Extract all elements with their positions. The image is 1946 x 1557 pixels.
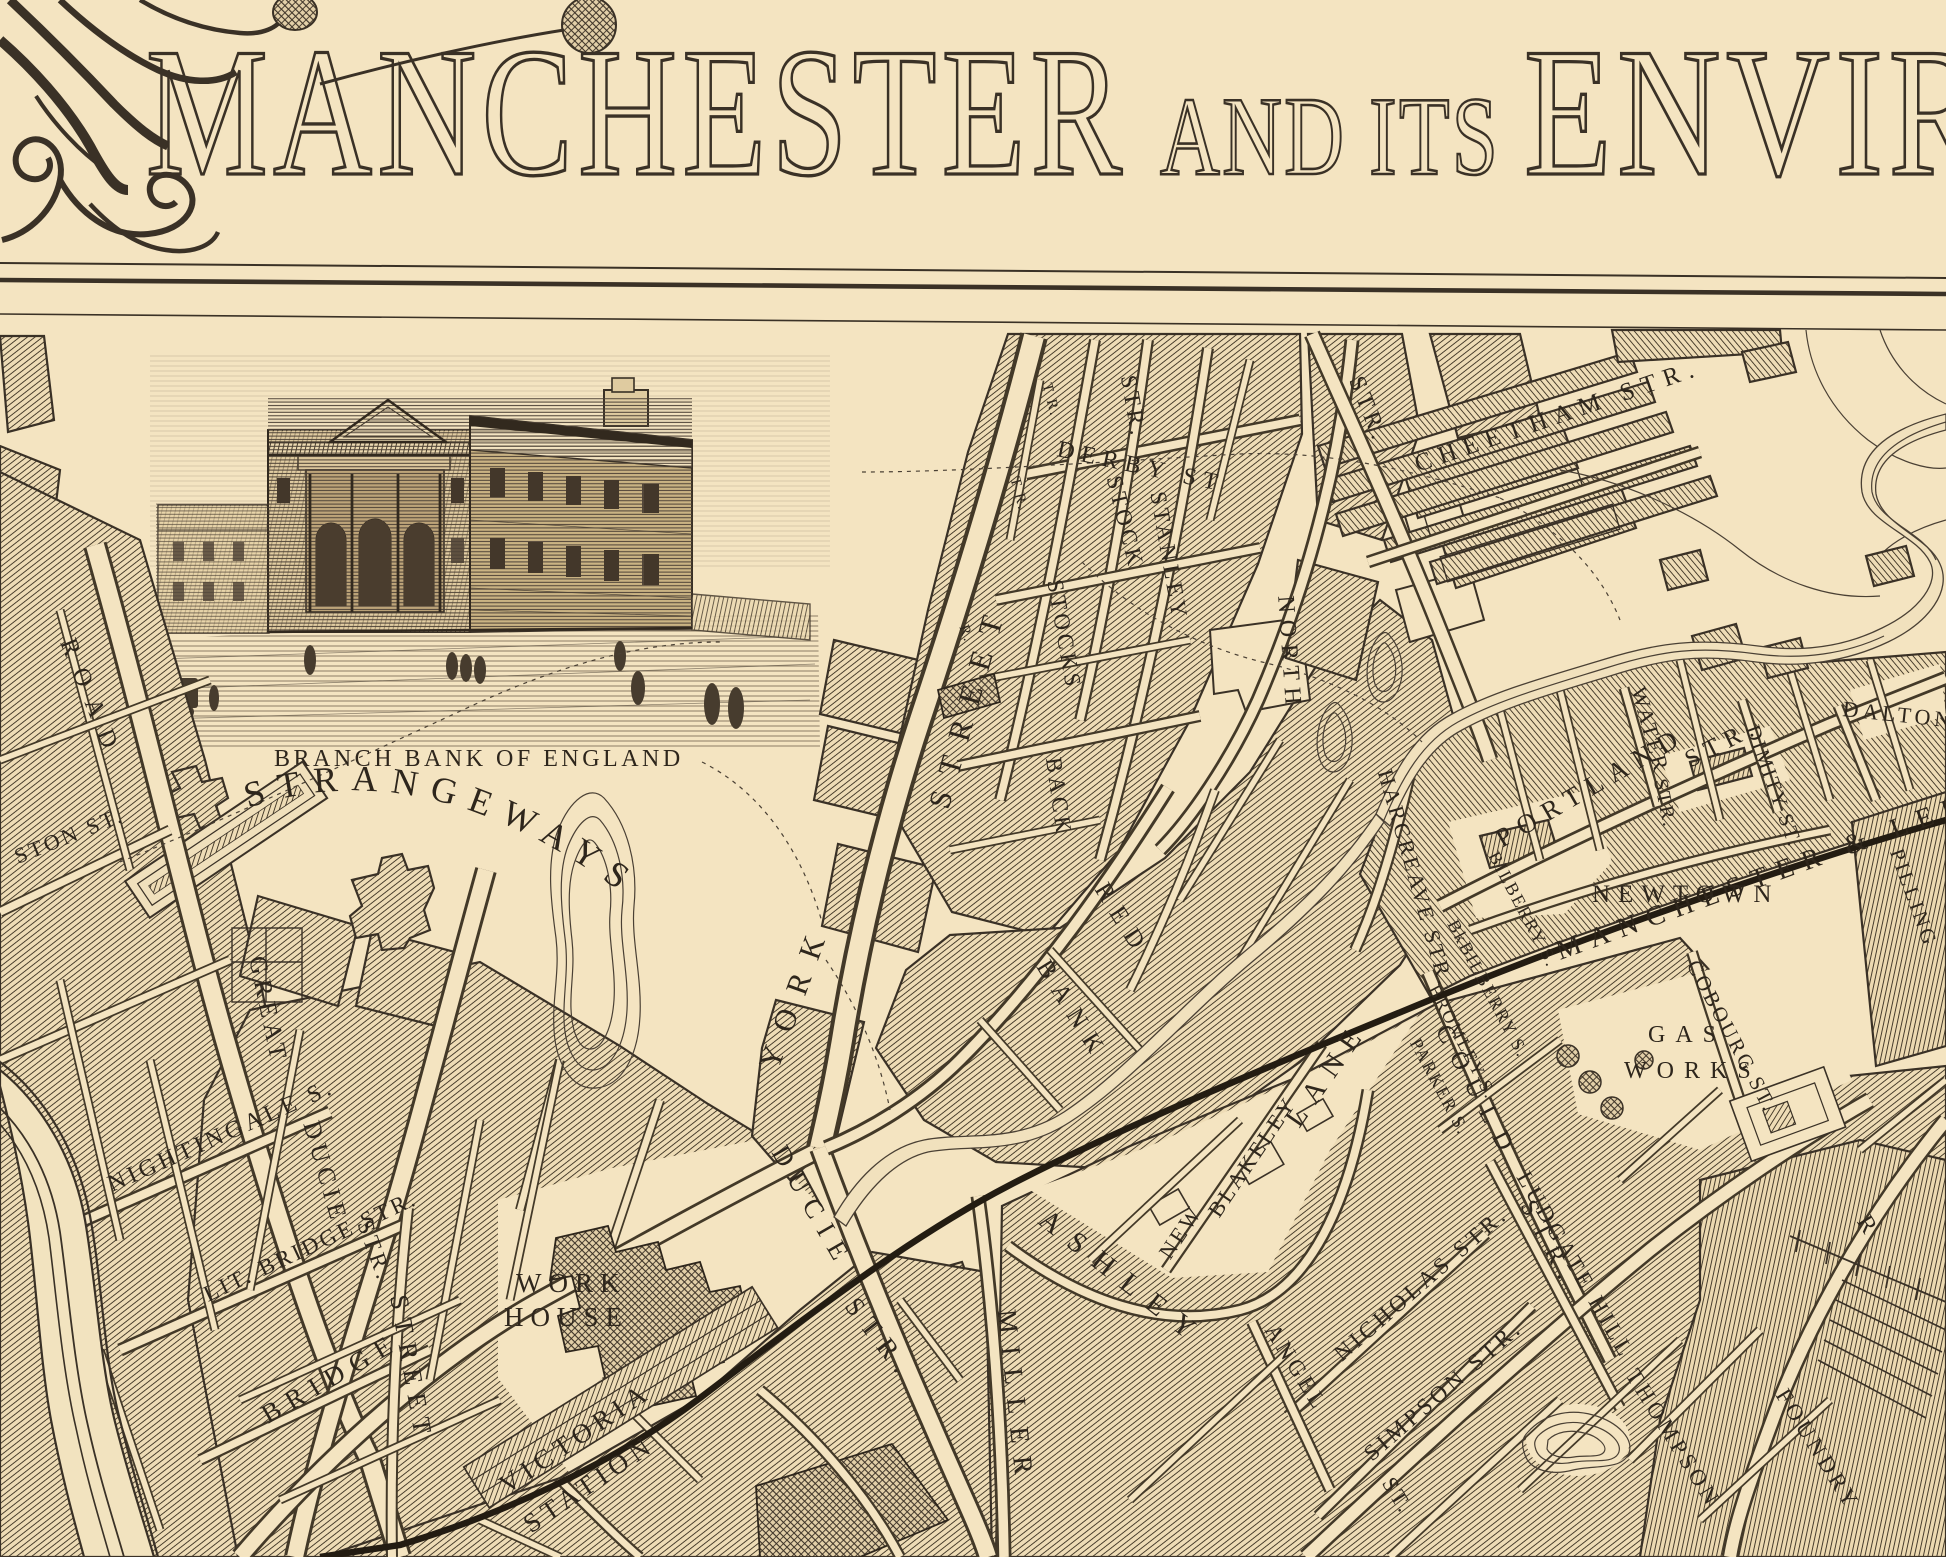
svg-text:MANCHESTER: MANCHESTER <box>146 11 1127 215</box>
svg-text:HOUSE: HOUSE <box>504 1302 629 1332</box>
svg-text:AND ITS: AND ITS <box>1160 75 1500 199</box>
svg-text:WORK: WORK <box>516 1268 627 1298</box>
svg-text:ENVIRO: ENVIRO <box>1524 10 1946 214</box>
